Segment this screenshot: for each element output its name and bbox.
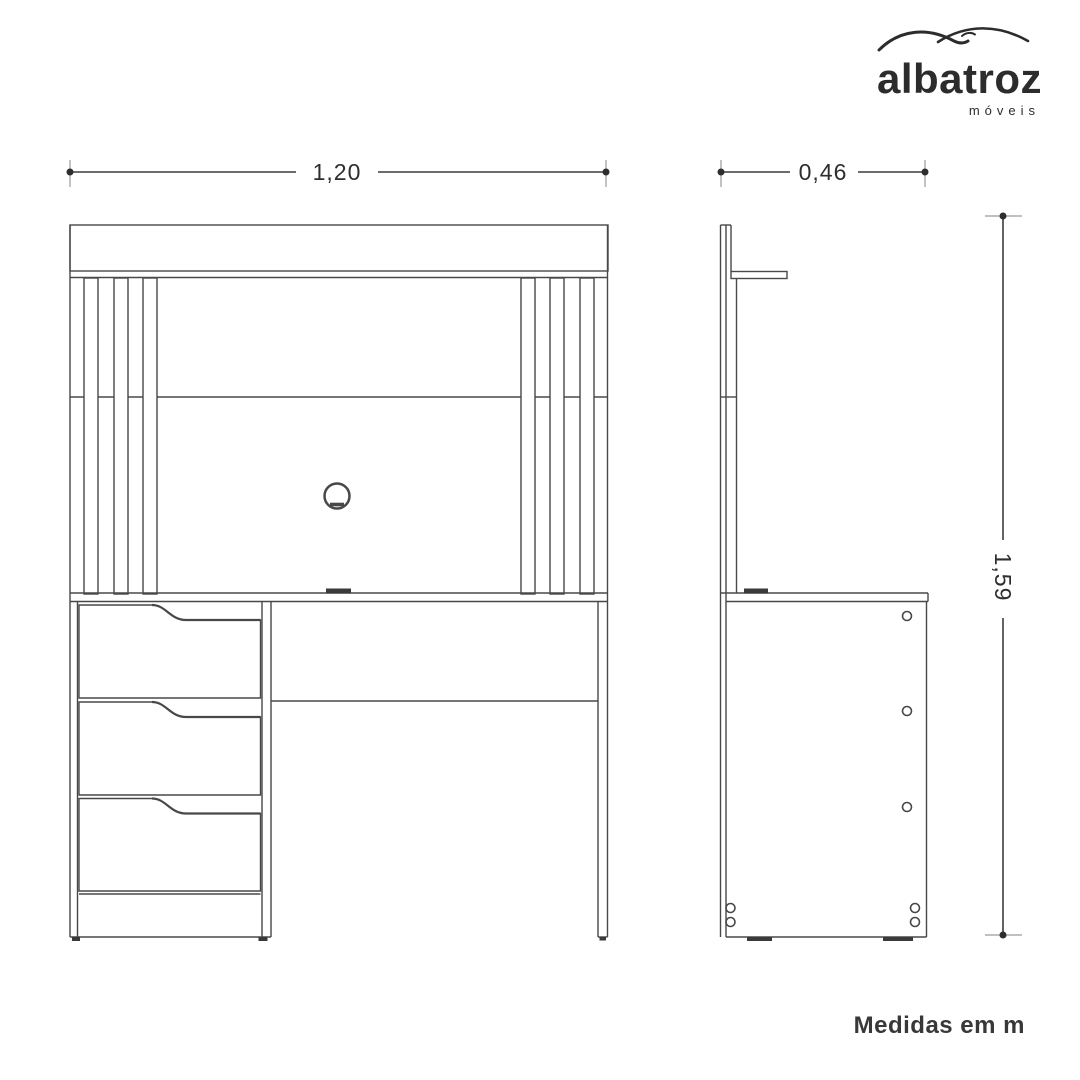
drawer-handle-groove-3: [152, 799, 261, 814]
dimension-width: 1,20: [67, 159, 610, 187]
drawer-front-3: [79, 799, 261, 892]
hutch-slat: [84, 278, 98, 594]
pedestal-foot-left: [72, 937, 80, 941]
hutch-slat: [114, 278, 128, 594]
cam-screw: [903, 803, 912, 812]
product-dimension-sheet: 1,20 0,46 1,59: [0, 0, 1080, 1080]
side-view: [721, 225, 929, 941]
hutch-slat: [143, 278, 157, 594]
dimension-height: 1,59: [985, 213, 1022, 939]
height-dot-bottom: [1000, 932, 1007, 939]
hutch-top-board: [70, 225, 608, 271]
width-dot-left: [67, 169, 74, 176]
dimension-depth: 0,46: [718, 159, 929, 187]
cam-screws: [726, 612, 920, 927]
drawer-handle-groove-1: [152, 605, 261, 620]
hutch-slat: [550, 278, 564, 594]
height-dot-top: [1000, 213, 1007, 220]
height-label: 1,59: [990, 553, 1016, 602]
albatross-bird-icon: [874, 20, 1034, 56]
depth-dot-right: [922, 169, 929, 176]
brand-name: albatroz: [842, 58, 1042, 100]
cam-screw: [903, 707, 912, 716]
front-view: [70, 225, 608, 941]
depth-label: 0,46: [799, 159, 848, 185]
brand-tagline: móveis: [842, 103, 1042, 118]
units-note: Medidas em m: [854, 1012, 1025, 1040]
cam-screw: [903, 612, 912, 621]
drawer-handle-groove-2: [152, 702, 261, 717]
cam-screw: [911, 918, 920, 927]
brand-logo: albatroz móveis: [842, 20, 1042, 118]
side-foot-back: [747, 937, 772, 941]
hutch-slats: [84, 278, 594, 594]
side-foot-front: [883, 937, 913, 941]
drawers: [79, 605, 261, 891]
width-dot-right: [603, 169, 610, 176]
cam-screw: [726, 904, 735, 913]
pedestal-foot-right: [259, 937, 268, 941]
side-cable-slot: [744, 589, 768, 594]
cam-screw: [726, 918, 735, 927]
cam-screw: [911, 904, 920, 913]
desktop-cable-slot: [326, 589, 351, 594]
depth-dot-left: [718, 169, 725, 176]
technical-drawing: 1,20 0,46 1,59: [0, 0, 1080, 1080]
right-leg-foot: [600, 937, 607, 941]
hutch-slat: [580, 278, 594, 594]
side-ledge: [731, 272, 787, 279]
width-label: 1,20: [313, 159, 362, 185]
hutch-slat: [521, 278, 535, 594]
